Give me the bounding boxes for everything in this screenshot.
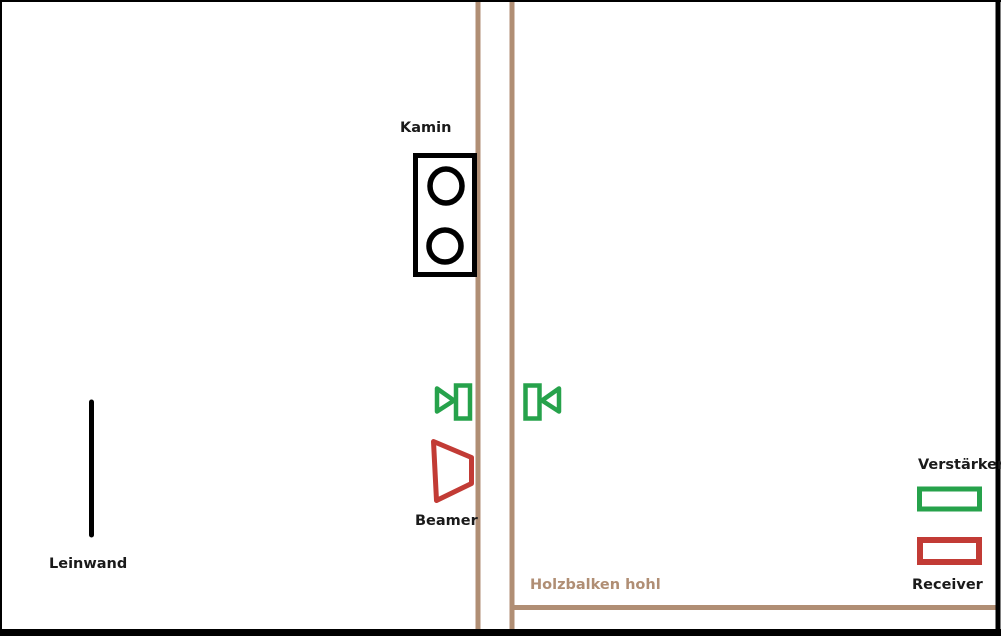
fireplace-icon [416,156,475,275]
legend-verstaerker-swatch [920,489,980,509]
speaker-body-left [456,386,470,419]
canvas-frame [0,0,1001,636]
fireplace-label: Kamin [400,120,451,137]
projector-label: Beamer [415,513,478,530]
floor-plan-drawing [0,0,1001,636]
floor-plan-canvas: Kamin Leinwand Beamer Verstärker Receive… [0,0,1001,636]
legend-receiver-label: Receiver [912,577,983,594]
speaker-body-right [526,386,540,419]
fireplace-body [416,156,475,275]
speaker-cone-right [542,389,559,412]
legend-verstaerker-label: Verstärker [918,457,1001,474]
speaker-cone-left [437,389,454,412]
legend-receiver-swatch [920,540,979,562]
wooden-beam-label: Holzbalken hohl [530,577,661,594]
projector-icon [434,442,472,501]
speaker-icon-right [526,386,560,419]
speaker-icon-left [437,386,470,419]
screen-label: Leinwand [49,556,127,573]
